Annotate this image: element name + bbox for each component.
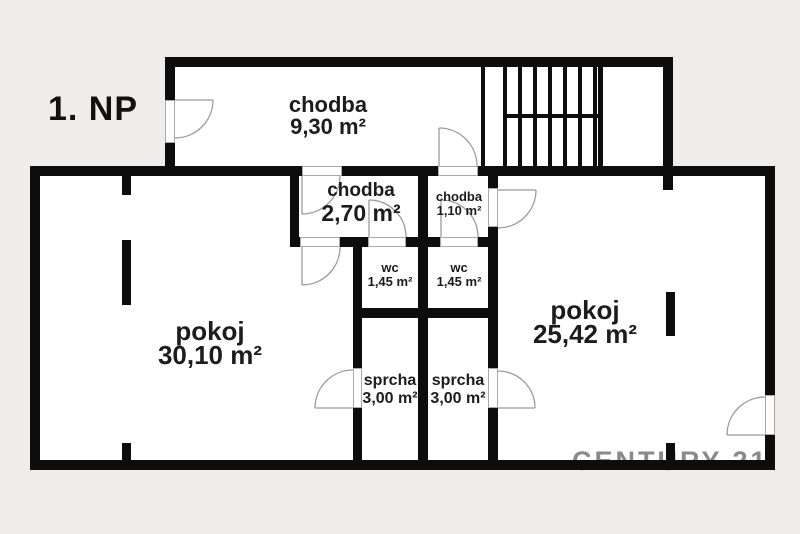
wall-segment [406, 237, 440, 247]
wall-segment [765, 435, 775, 470]
door-frame [368, 237, 406, 247]
main-floor [30, 166, 775, 470]
stair-edge [481, 67, 485, 166]
door-frame [165, 100, 175, 143]
wall-segment [666, 292, 675, 336]
floor-label: 1. NP [48, 90, 138, 129]
wall-segment [342, 166, 438, 176]
door-frame [488, 188, 498, 227]
door-frame [765, 395, 775, 435]
wall-segment [478, 237, 498, 247]
wall-segment [30, 166, 302, 176]
wall-segment [30, 166, 40, 470]
wall-segment [418, 176, 428, 460]
wall-segment [122, 240, 131, 305]
wall-segment [353, 308, 498, 318]
wall-segment [353, 408, 362, 460]
door-frame [440, 237, 478, 247]
door-frame [300, 237, 340, 247]
wall-segment [353, 247, 362, 368]
wall-segment [122, 443, 131, 460]
wall-segment [165, 57, 673, 67]
stair-mid-rail [503, 114, 603, 118]
wall-segment [488, 176, 498, 188]
wall-segment [488, 227, 498, 368]
wall-segment [340, 237, 368, 247]
wall-segment [488, 408, 498, 460]
wall-segment [30, 460, 775, 470]
wall-segment [122, 176, 131, 195]
floor-plan: CENTURY 21. [0, 0, 800, 534]
door-frame [488, 368, 498, 408]
wall-segment [666, 443, 675, 460]
wall-segment [478, 166, 775, 176]
door-frame [438, 166, 478, 176]
wall-segment [290, 237, 300, 247]
door-frame [353, 368, 362, 408]
door-frame [302, 166, 342, 176]
wall-segment [765, 166, 775, 395]
wall-segment [165, 57, 175, 100]
